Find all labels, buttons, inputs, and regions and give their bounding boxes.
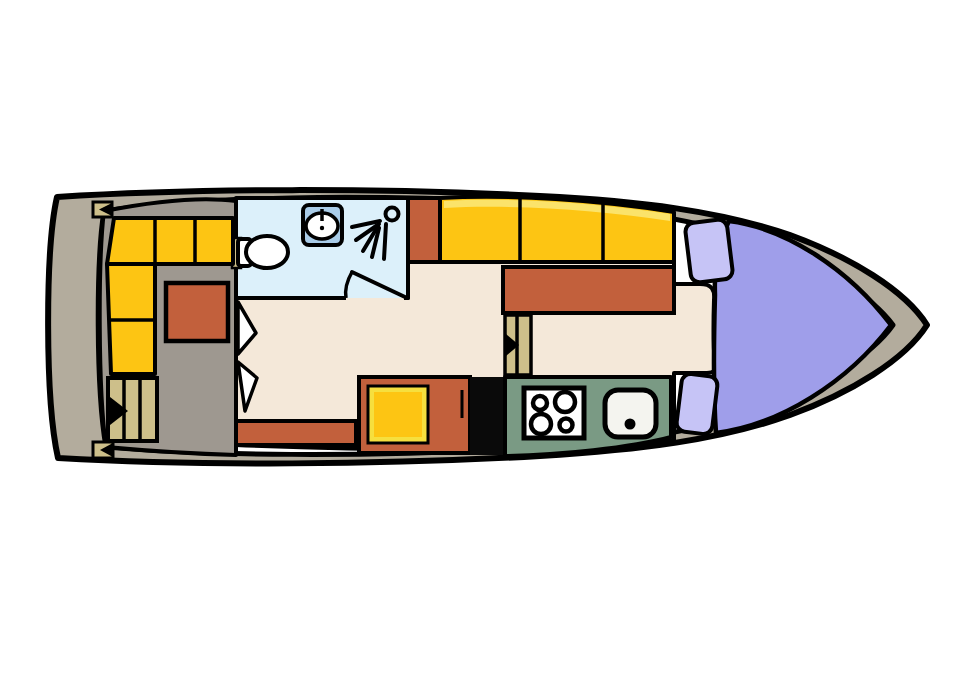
stairs-up-icon [505, 315, 531, 375]
berth-pillow-top [685, 219, 734, 284]
v-berth-mattress [714, 221, 891, 433]
saloon-bench [236, 421, 356, 445]
stairs-down-icon [108, 378, 157, 441]
boarding-gate-icon [93, 202, 112, 217]
black-unit [470, 377, 505, 455]
cockpit-table [166, 283, 228, 341]
tv-cabinet [359, 377, 470, 453]
boat-floor-plan [0, 0, 960, 679]
boat-floor-plan-canvas [0, 0, 960, 679]
berth-pillow-bottom [676, 373, 719, 435]
sideboard-counter [503, 267, 674, 313]
dinette-bench [440, 197, 674, 262]
kitchen-sink-icon [605, 390, 656, 437]
wardrobe-block [408, 198, 440, 262]
stove-burners-icon [524, 388, 584, 438]
toilet-icon [238, 236, 288, 268]
washbasin-icon [303, 205, 342, 245]
boarding-gate-icon [93, 442, 113, 458]
